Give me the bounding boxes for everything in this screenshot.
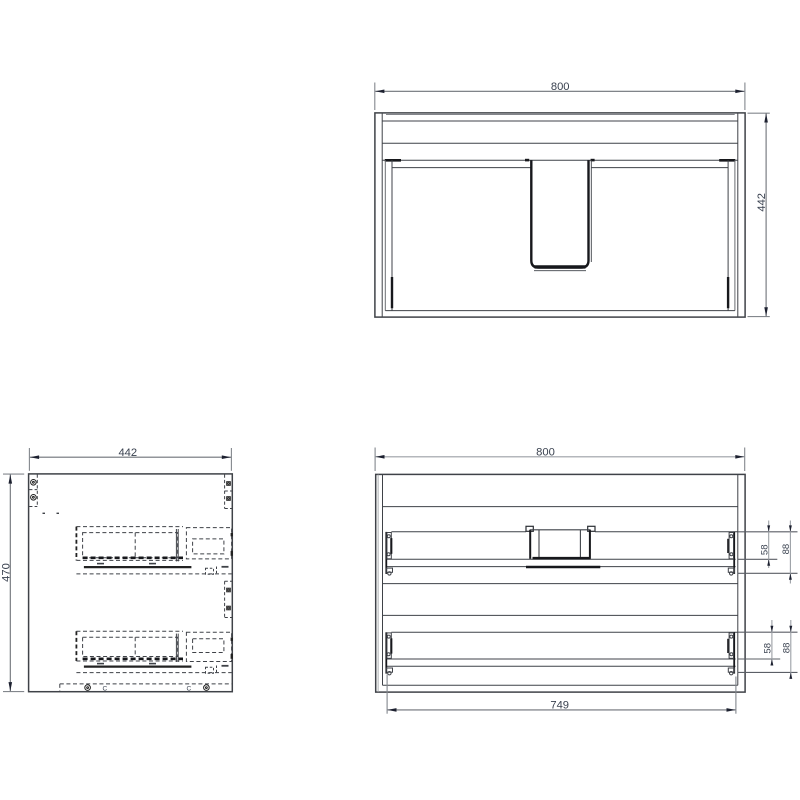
svg-text:88: 88 [781,544,792,555]
svg-text:58: 58 [763,643,774,654]
svg-text:800: 800 [551,81,570,93]
svg-text:442: 442 [756,193,768,212]
svg-text:C: C [187,685,192,692]
svg-text:800: 800 [536,446,555,458]
svg-text:88: 88 [781,643,792,654]
svg-text:58: 58 [759,545,770,556]
svg-text:C: C [103,685,108,692]
svg-text:442: 442 [118,447,137,459]
svg-text:470: 470 [1,563,13,582]
svg-text:749: 749 [550,700,569,712]
